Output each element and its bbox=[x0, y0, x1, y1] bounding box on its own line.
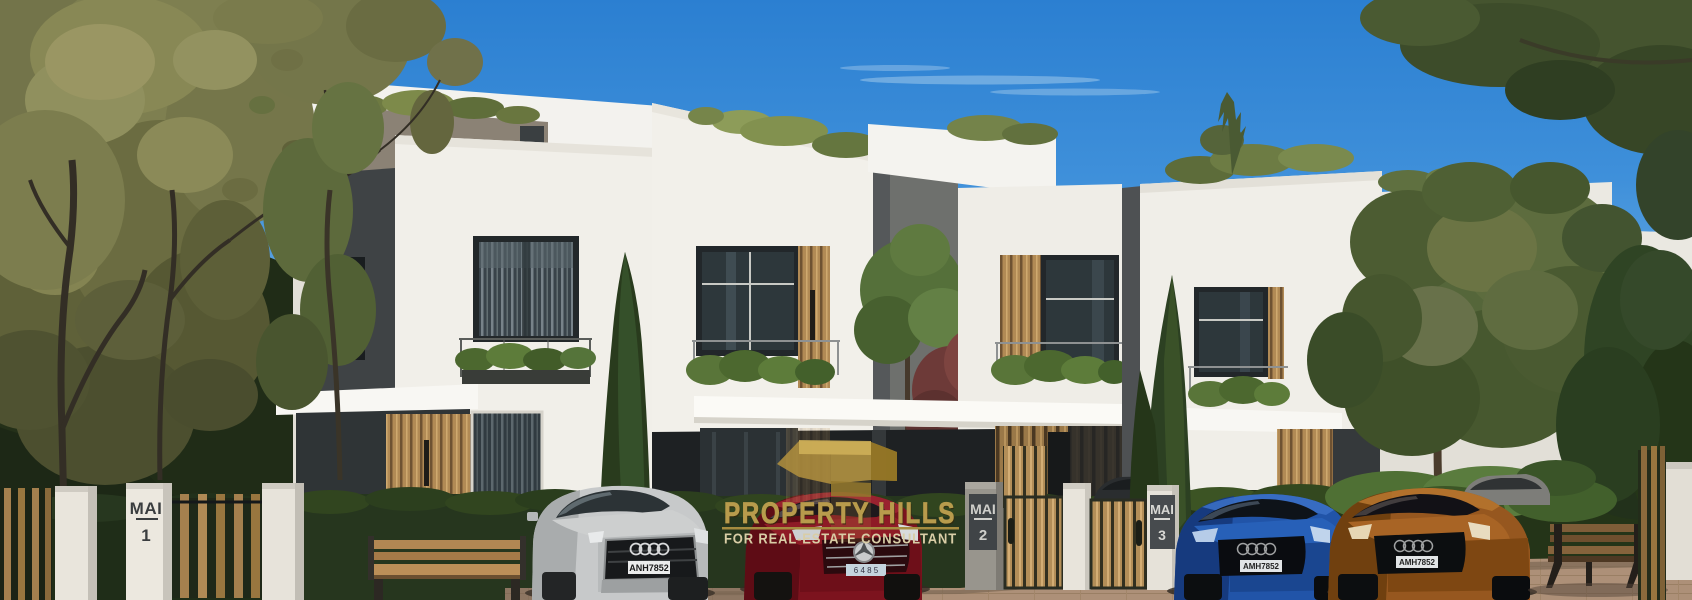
svg-text:ANH7852: ANH7852 bbox=[629, 563, 669, 573]
svg-text:MAI: MAI bbox=[970, 501, 996, 517]
svg-text:1: 1 bbox=[141, 526, 150, 545]
svg-text:FOR REAL-ESTATE CONSULTANT: FOR REAL-ESTATE CONSULTANT bbox=[724, 531, 957, 548]
svg-text:AMH7852: AMH7852 bbox=[1399, 558, 1436, 567]
svg-text:6 4 8 5: 6 4 8 5 bbox=[854, 566, 879, 575]
svg-text:3: 3 bbox=[1158, 527, 1166, 543]
svg-text:PROPERTY HILLS: PROPERTY HILLS bbox=[724, 497, 956, 530]
svg-text:MAI: MAI bbox=[130, 499, 163, 518]
svg-text:MAI: MAI bbox=[1150, 502, 1174, 517]
svg-text:AMH7852: AMH7852 bbox=[1243, 562, 1280, 571]
svg-text:2: 2 bbox=[979, 527, 987, 544]
